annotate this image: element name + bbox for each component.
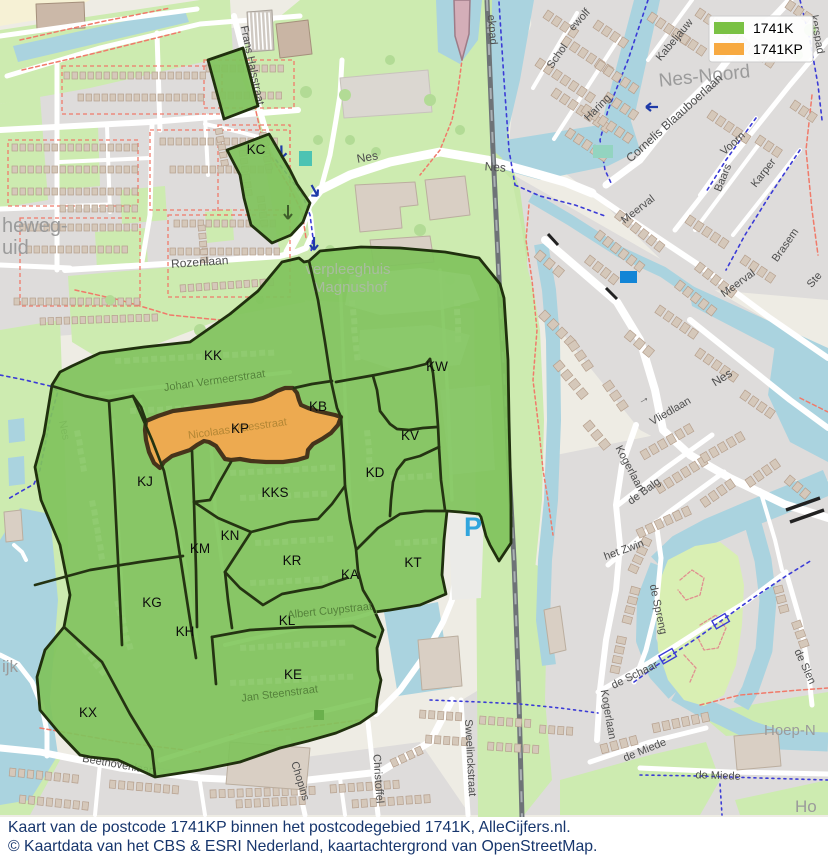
svg-text:Kaart van de postcode 1741KP b: Kaart van de postcode 1741KP binnen het …	[8, 819, 571, 836]
svg-text:1741K: 1741K	[753, 20, 794, 36]
svg-text:1741KP: 1741KP	[753, 41, 803, 57]
svg-text:KC: KC	[247, 142, 266, 157]
svg-text:KX: KX	[79, 705, 97, 720]
svg-text:de Miede: de Miede	[695, 769, 741, 783]
svg-text:Magnushof: Magnushof	[313, 279, 388, 296]
svg-text:KE: KE	[284, 667, 302, 682]
svg-text:KG: KG	[142, 595, 162, 610]
svg-text:KW: KW	[426, 359, 448, 374]
svg-text:uid: uid	[2, 237, 29, 259]
svg-text:KH: KH	[176, 624, 195, 639]
svg-text:KT: KT	[404, 555, 421, 570]
svg-text:ijk: ijk	[2, 657, 19, 676]
svg-text:Nes: Nes	[484, 159, 506, 174]
svg-text:KA: KA	[341, 567, 359, 582]
svg-text:heweg-: heweg-	[2, 215, 68, 237]
svg-text:KK: KK	[204, 348, 222, 363]
svg-text:© Kaartdata van het CBS & ESRI: © Kaartdata van het CBS & ESRI Nederland…	[8, 838, 597, 855]
svg-text:KP: KP	[231, 421, 249, 436]
svg-text:KN: KN	[221, 528, 240, 543]
svg-text:KM: KM	[190, 541, 210, 556]
svg-text:KKS: KKS	[261, 485, 288, 500]
svg-text:verpleeghuis: verpleeghuis	[305, 261, 390, 278]
svg-text:Ho: Ho	[795, 797, 817, 816]
svg-text:KR: KR	[283, 553, 302, 568]
svg-text:Hoep-N: Hoep-N	[764, 722, 816, 739]
svg-text:KB: KB	[309, 399, 327, 414]
svg-text:P: P	[464, 512, 482, 542]
svg-text:KV: KV	[401, 428, 419, 443]
svg-text:KD: KD	[366, 465, 385, 480]
svg-text:KJ: KJ	[137, 474, 153, 489]
